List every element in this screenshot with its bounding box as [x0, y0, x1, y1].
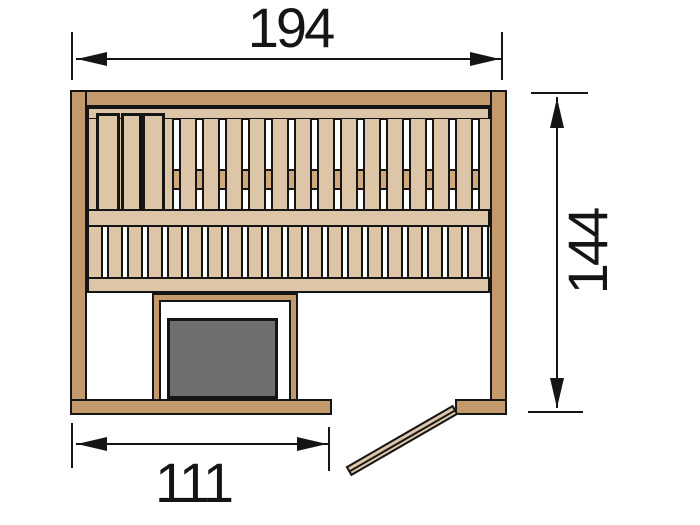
dim-top-tick-right	[501, 32, 503, 80]
bench-front-board	[87, 209, 490, 227]
lower-bench-front-board	[87, 277, 490, 293]
wall-top	[70, 90, 507, 107]
wall-bottom-right	[455, 399, 507, 415]
dim-top-label: 194	[210, 1, 370, 55]
dim-top-tick-left	[71, 32, 73, 80]
bench-wide-slat-2	[121, 113, 142, 221]
door-leaf-edge-line	[349, 409, 456, 472]
dim-right-arrowhead-bottom	[550, 378, 564, 408]
sauna-floor-plan: 194 144 111	[0, 0, 700, 525]
dim-right-tick-top	[531, 92, 588, 94]
heater	[167, 318, 278, 399]
wall-left	[70, 90, 87, 415]
lower-bench-slat-pattern	[87, 227, 490, 277]
dim-bottom-tick-left	[71, 423, 73, 468]
dim-bottom-line	[76, 443, 329, 445]
dim-bottom-arrowhead-right	[297, 437, 327, 451]
door-leaf	[346, 405, 459, 477]
bench-wide-slat-3	[142, 113, 165, 221]
bench-wide-slat-1	[96, 113, 120, 221]
wall-right	[490, 90, 507, 415]
lower-bench-slats	[87, 227, 490, 277]
dim-right-arrowhead-top	[550, 98, 564, 128]
dim-right-tick-bottom	[528, 411, 583, 413]
dim-top-arrowhead-left	[77, 52, 107, 66]
dim-right-label: 144	[561, 172, 615, 332]
dim-bottom-arrowhead-left	[77, 437, 107, 451]
dim-bottom-label: 111	[113, 456, 273, 510]
wall-bottom-left	[70, 399, 332, 415]
dim-top-arrowhead-right	[470, 52, 500, 66]
dim-bottom-tick-right	[328, 427, 330, 471]
